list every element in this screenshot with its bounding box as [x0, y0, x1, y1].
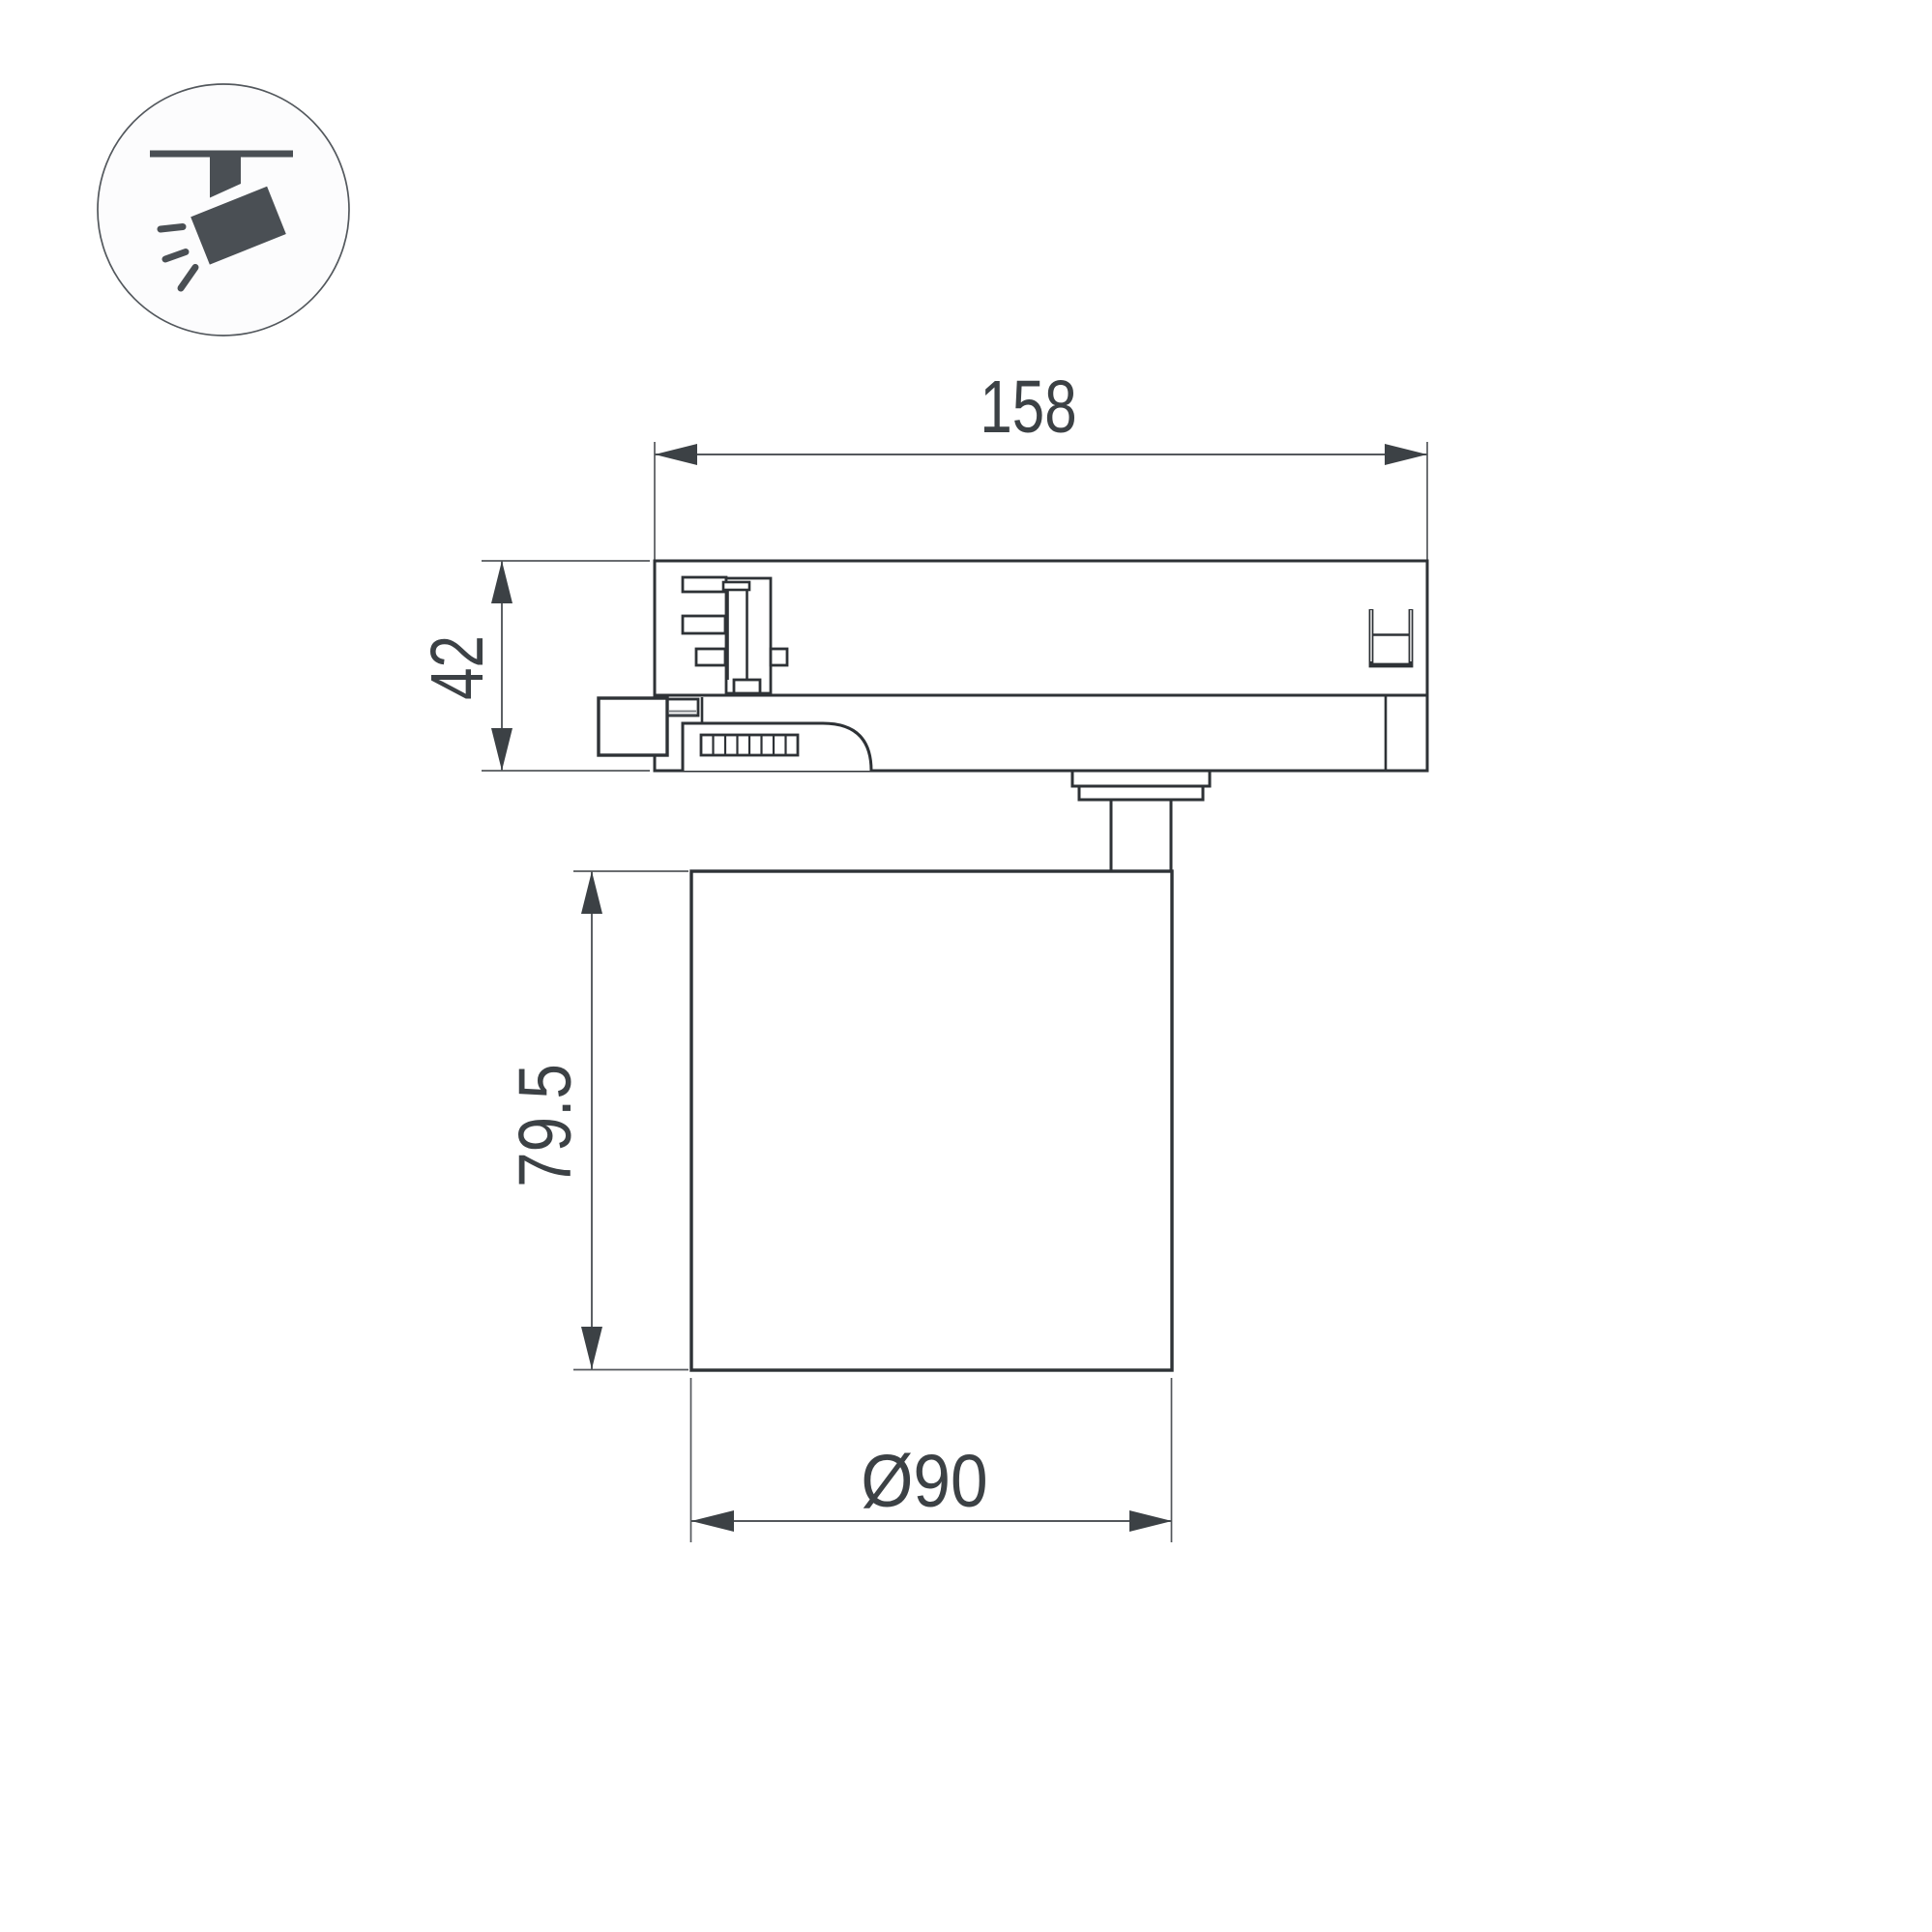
- svg-text:Ø90: Ø90: [861, 1440, 987, 1523]
- svg-text:42: 42: [415, 635, 499, 700]
- svg-text:79.5: 79.5: [504, 1064, 587, 1187]
- svg-text:158: 158: [980, 365, 1076, 449]
